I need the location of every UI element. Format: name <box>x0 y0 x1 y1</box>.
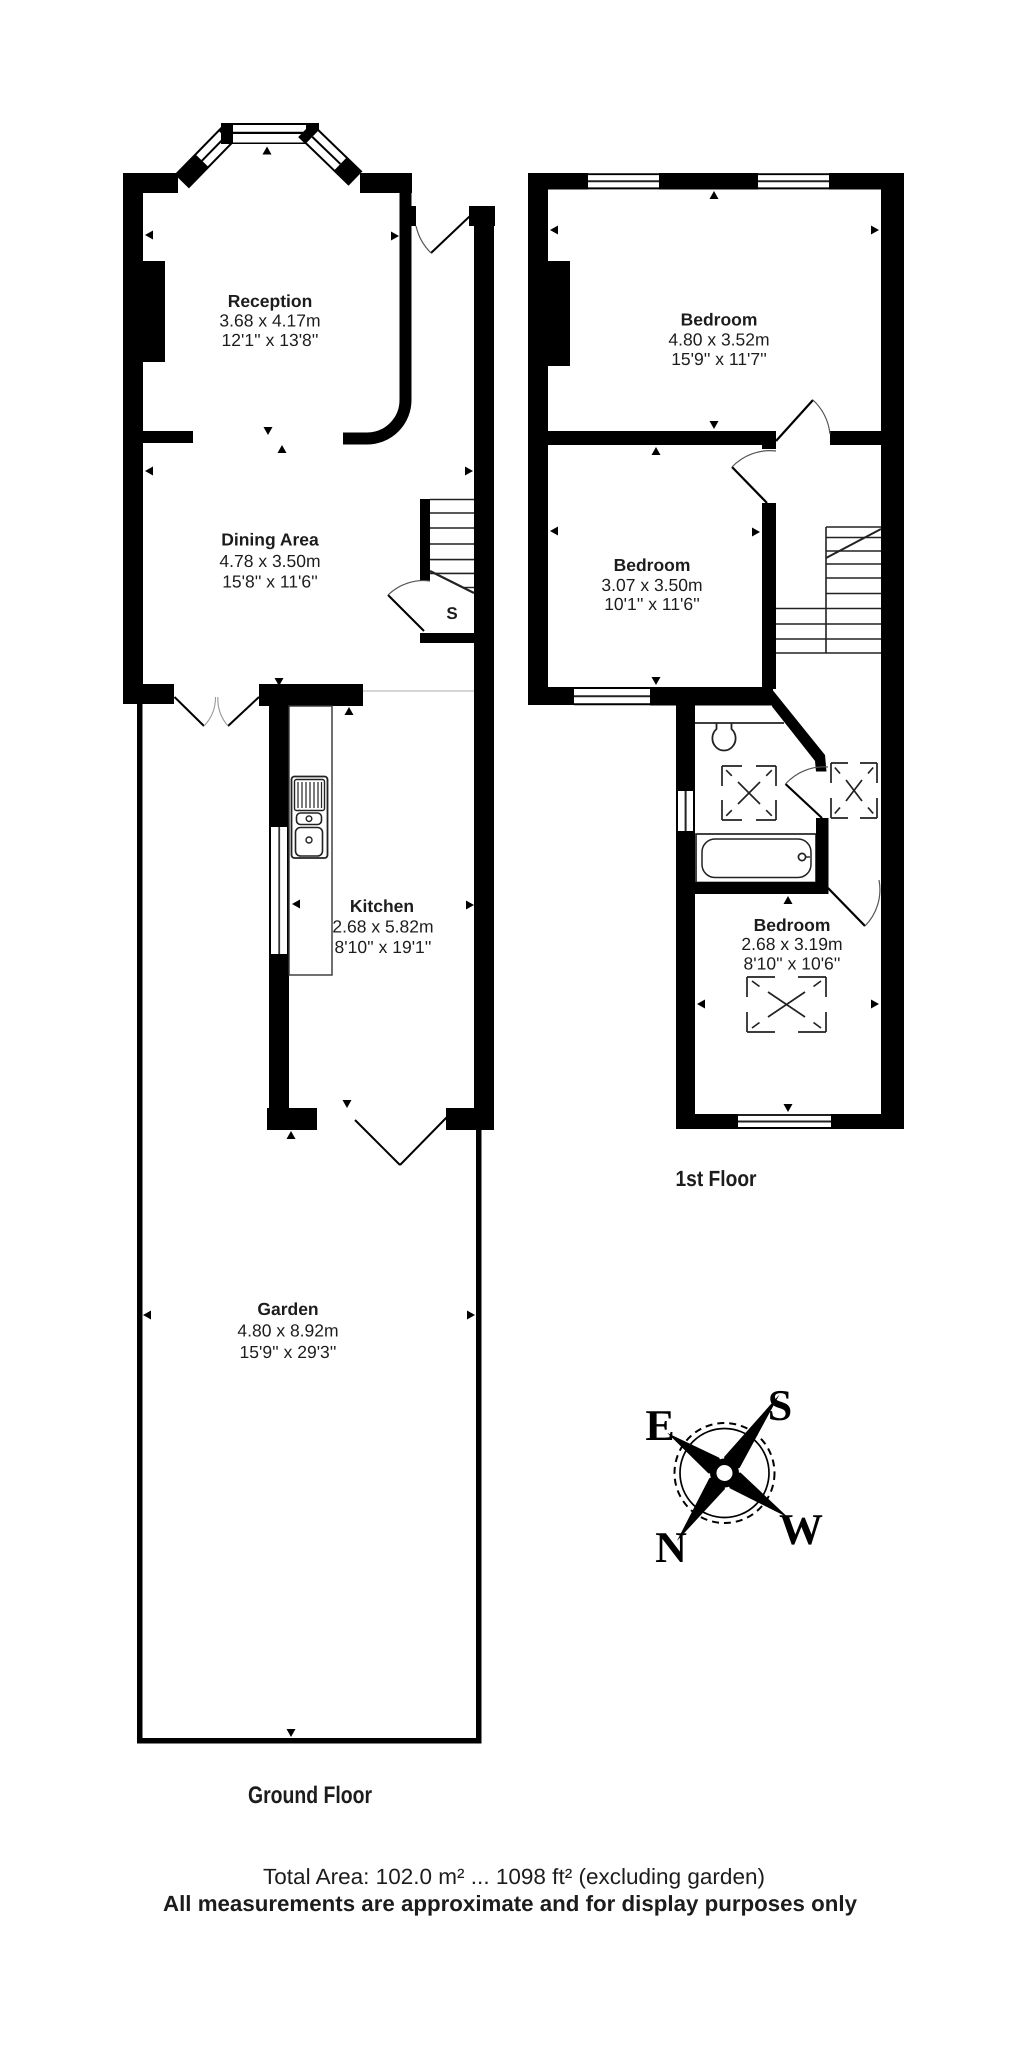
svg-text:12'1'' x 13'8'': 12'1'' x 13'8'' <box>222 330 319 350</box>
svg-text:4.80 x 3.52m: 4.80 x 3.52m <box>668 330 769 350</box>
svg-text:Ground Floor: Ground Floor <box>248 1782 372 1809</box>
svg-text:2.68 x 5.82m: 2.68 x 5.82m <box>332 917 433 937</box>
svg-text:S: S <box>446 604 457 623</box>
svg-text:15'8'' x 11'6'': 15'8'' x 11'6'' <box>222 572 318 592</box>
svg-text:Bedroom: Bedroom <box>681 310 758 330</box>
svg-text:8'10'' x 10'6'': 8'10'' x 10'6'' <box>744 954 841 974</box>
svg-text:15'9'' x 29'3'': 15'9'' x 29'3'' <box>240 1342 337 1362</box>
svg-text:W: W <box>779 1505 823 1554</box>
svg-text:3.68 x 4.17m: 3.68 x 4.17m <box>219 311 320 331</box>
svg-text:Garden: Garden <box>257 1299 318 1319</box>
svg-text:E: E <box>645 1401 674 1450</box>
svg-text:Bedroom: Bedroom <box>754 915 831 935</box>
svg-text:N: N <box>655 1523 687 1572</box>
svg-text:1st Floor: 1st Floor <box>676 1166 757 1191</box>
svg-text:All measurements are approxima: All measurements are approximate and for… <box>163 1891 858 1916</box>
svg-text:Reception: Reception <box>228 291 313 311</box>
svg-text:4.78 x 3.50m: 4.78 x 3.50m <box>219 551 320 571</box>
svg-text:Total Area: 102.0 m² ... 1098: Total Area: 102.0 m² ... 1098 ft² (exclu… <box>263 1864 765 1889</box>
svg-text:Dining Area: Dining Area <box>221 530 319 550</box>
svg-text:15'9'' x 11'7'': 15'9'' x 11'7'' <box>671 349 767 369</box>
svg-text:Bedroom: Bedroom <box>614 555 691 575</box>
svg-text:10'1'' x 11'6'': 10'1'' x 11'6'' <box>604 594 700 614</box>
svg-text:Kitchen: Kitchen <box>350 896 414 916</box>
svg-text:2.68 x 3.19m: 2.68 x 3.19m <box>741 934 842 954</box>
svg-text:3.07 x 3.50m: 3.07 x 3.50m <box>601 575 702 595</box>
svg-text:S: S <box>768 1381 792 1430</box>
svg-text:4.80 x 8.92m: 4.80 x 8.92m <box>237 1321 338 1341</box>
svg-text:8'10'' x 19'1'': 8'10'' x 19'1'' <box>335 937 432 957</box>
